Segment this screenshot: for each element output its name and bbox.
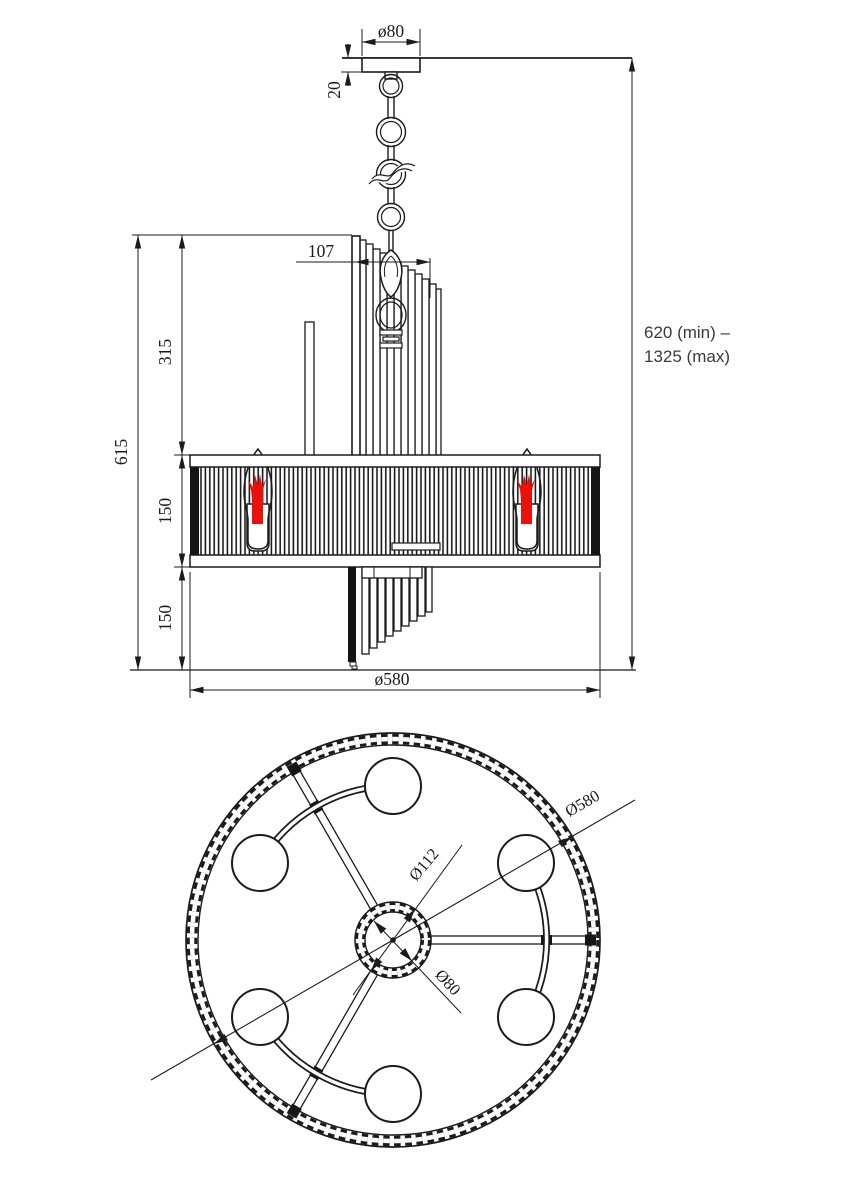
- lower-section-label: 150: [155, 605, 175, 632]
- dim-canopy-diameter: ø80: [362, 21, 420, 56]
- lamp-bracket-plate: [392, 543, 440, 550]
- suspension-range-line2: 1325 (max): [644, 347, 730, 366]
- drum-bottom-rim: [190, 555, 600, 567]
- drawing-sheet: ø80 20: [0, 0, 848, 1200]
- lower-bracket: [362, 567, 422, 578]
- upper-section-label: 315: [155, 339, 175, 366]
- cluster-width-label: 107: [308, 241, 335, 261]
- dim-canopy-height: 20: [324, 44, 361, 99]
- upper-rod-cascade: [305, 236, 441, 458]
- chandelier-technical-drawing: ø80 20: [0, 0, 848, 1200]
- front-elevation-view: ø80 20: [111, 21, 731, 698]
- canopy-height-label: 20: [324, 81, 344, 99]
- bottom-plan-view: Ø580 Ø112 Ø80: [151, 733, 635, 1147]
- ceiling-canopy: [362, 58, 420, 79]
- suspension-range-line1: 620 (min) –: [644, 323, 731, 342]
- plan-hub-inner-label: Ø80: [431, 965, 464, 999]
- plan-outer-diameter-label: Ø580: [562, 786, 603, 821]
- canopy-diameter-label: ø80: [378, 21, 405, 41]
- crystal-drum-shade: [190, 449, 600, 567]
- dim-plan-hub-inner: Ø80: [371, 918, 464, 1013]
- shade-height-label: 150: [155, 498, 175, 525]
- shade-diameter-label: ø580: [375, 669, 410, 689]
- drum-top-rim: [190, 455, 600, 467]
- plan-hub-outer-label: Ø112: [405, 845, 443, 885]
- lower-rod-cascade: [348, 567, 432, 669]
- dim-suspension-range: 620 (min) – 1325 (max): [632, 58, 731, 670]
- fixture-height-label: 615: [111, 439, 131, 466]
- hanging-chain: [369, 75, 415, 253]
